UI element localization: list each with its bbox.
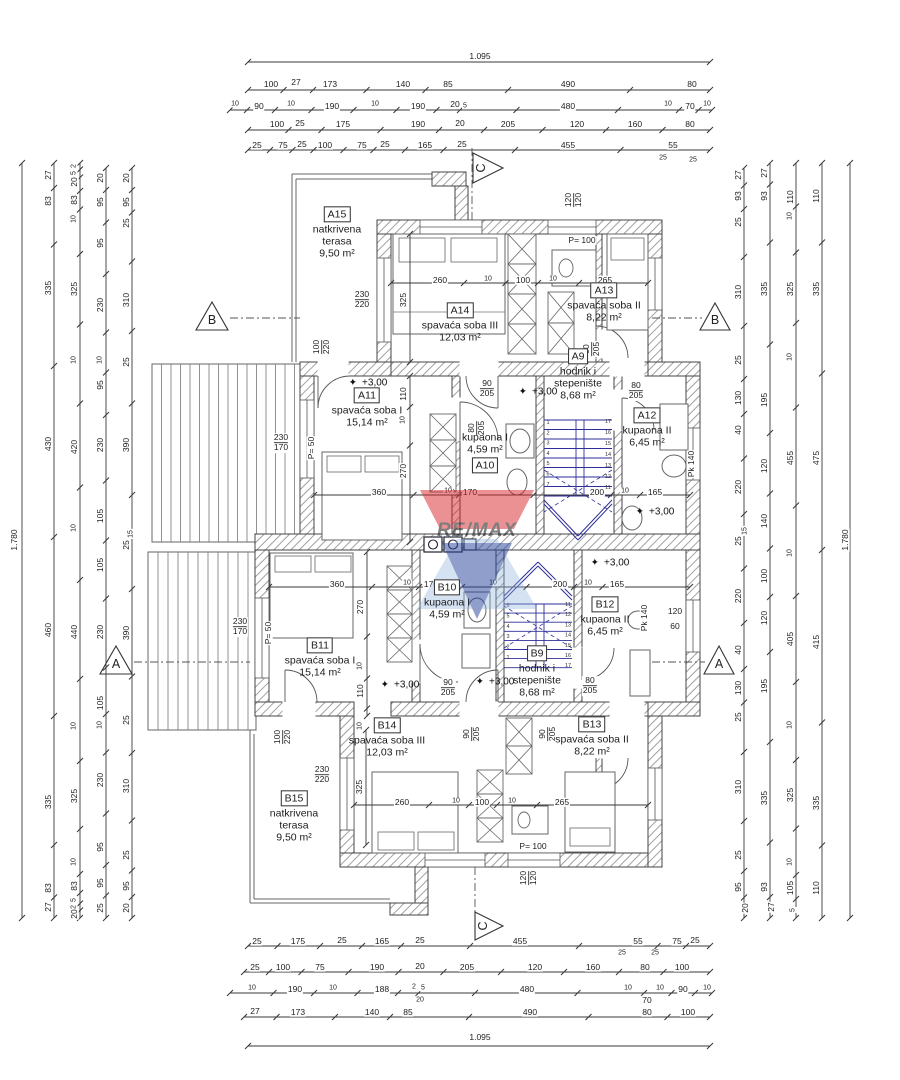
svg-text:3: 3 [546, 441, 549, 447]
dimension-label: 110 [786, 189, 795, 205]
dimension-label: 335 [44, 280, 53, 296]
svg-text:11: 11 [605, 485, 611, 491]
level-star-icon: ✦ [381, 680, 389, 691]
dimension-label: 360 [371, 488, 387, 497]
dimension-label: 83 [44, 195, 53, 206]
dimension-label: 10 [357, 661, 364, 671]
dimension-label: 455 [560, 141, 576, 150]
dimension-label: 25 [122, 356, 131, 367]
dimension-label: 10 [787, 548, 794, 558]
svg-text:5: 5 [546, 461, 549, 467]
dimension-label: 27 [767, 901, 776, 912]
dimension-label: 188 [374, 985, 390, 994]
dimension-label: 5 [420, 985, 426, 992]
opening-size-label: 230170 [232, 617, 248, 637]
dimension-label: 95 [96, 877, 105, 888]
room-label-b12: B12kupaona II6,45 m² [580, 594, 629, 637]
level-marker: ✦+3,00 [381, 680, 420, 691]
dimension-label: 175 [290, 937, 306, 946]
dimension-label: 25 [251, 141, 262, 150]
dimension-label: 325 [786, 787, 795, 803]
dimension-label: 95 [122, 880, 131, 891]
dimension-label: 100 [275, 963, 291, 972]
dimension-label: 230 [96, 772, 105, 788]
dimension-label: 230 [96, 297, 105, 313]
dimension-label: 27 [44, 901, 53, 912]
svg-text:11: 11 [565, 602, 571, 608]
dimension-label: 190 [324, 102, 340, 111]
dimension-label: 130 [734, 390, 743, 406]
dimension-label: 10 [247, 985, 257, 992]
opening-size-label: 120120 [564, 192, 584, 208]
dimension-label: 10 [483, 276, 493, 283]
dimension-label: 25 [734, 849, 743, 860]
svg-text:17: 17 [605, 419, 611, 425]
dimension-label: 10 [71, 355, 78, 365]
dimension-label: 430 [44, 436, 53, 452]
svg-text:2: 2 [546, 430, 549, 436]
dimension-label: 105 [786, 880, 795, 896]
dimension-label: 10 [655, 985, 665, 992]
dimension-label: 325 [786, 281, 795, 297]
opening-size-label: 90205 [479, 379, 495, 399]
dimension-label: 325 [70, 281, 79, 297]
dimension-label: 25 [734, 535, 743, 546]
opening-size-label: 80205 [628, 381, 644, 401]
dimension-label: 80 [686, 80, 697, 89]
watermark-brand-text: RE/MAX [402, 520, 552, 542]
dimension-label: 20 [70, 908, 79, 919]
dimension-label: 480 [560, 102, 576, 111]
dimension-label: 75 [277, 141, 288, 150]
floor-plan-canvas: 1234567171615141312116543211112131415161… [0, 0, 900, 1080]
dimension-label: 325 [70, 788, 79, 804]
dimension-label: 10 [71, 857, 78, 867]
dimension-label: 165 [374, 937, 390, 946]
dimension-label: 10 [71, 721, 78, 731]
dimension-label: 165 [417, 141, 433, 150]
dimension-label: Pk 140 [687, 450, 696, 478]
dimension-label: 205 [500, 120, 516, 129]
opening-size-label: 80205 [582, 676, 598, 696]
dimension-label: 390 [122, 625, 131, 641]
dimension-label: 70 [641, 996, 652, 1005]
dimension-label: 110 [812, 880, 821, 896]
dimension-label: 10 [370, 101, 380, 108]
dimension-label: 90 [253, 102, 264, 111]
dimension-label: 310 [734, 284, 743, 300]
room-label-a15: A15natkrivenaterasa9,50 m² [313, 204, 361, 259]
dimension-label: 173 [290, 1008, 306, 1017]
dimension-label: 20 [122, 902, 131, 913]
dimension-label: 195 [760, 392, 769, 408]
dimension-label: 100 [269, 120, 285, 129]
dimension-label: 335 [44, 794, 53, 810]
dimension-label: 310 [122, 778, 131, 794]
dimension-label: 93 [760, 881, 769, 892]
dimension-label: 120 [667, 607, 683, 616]
dimension-label: 20 [122, 172, 131, 183]
dimension-label: 230 [96, 624, 105, 640]
opening-size-label: 90205 [440, 678, 456, 698]
level-marker: ✦+3,00 [636, 507, 675, 518]
dimension-label: 270 [356, 599, 365, 615]
dimension-label: 27 [760, 167, 769, 178]
opening-size-label: 230220 [314, 765, 330, 785]
dimension-label: 25 [414, 936, 425, 945]
dimension-label: 175 [335, 120, 351, 129]
section-marker-letter: A [111, 658, 121, 671]
dimension-label: 83 [70, 194, 79, 205]
section-marker-letter: A [714, 658, 724, 671]
dimension-label: 10 [71, 214, 78, 224]
dimension-label: 27 [290, 78, 301, 87]
dimension-label: 10 [787, 211, 794, 221]
dimension-label: 27 [249, 1007, 260, 1016]
dimension-label: 190 [410, 102, 426, 111]
level-marker: ✦+3,00 [476, 677, 515, 688]
dimension-label: 190 [410, 120, 426, 129]
room-label-a13: A13spavaća soba II8,22 m² [567, 280, 641, 323]
dimension-label: 55 [632, 937, 643, 946]
dimension-label: Pk 140 [640, 604, 649, 632]
svg-text:15: 15 [565, 643, 571, 649]
dimension-label: 83 [44, 882, 53, 893]
dimension-label: 75 [671, 937, 682, 946]
dimension-label: 10 [787, 352, 794, 362]
dimension-label: 120 [760, 458, 769, 474]
dimension-label: 10 [286, 101, 296, 108]
dimension-label: 265 [554, 798, 570, 807]
dimension-label: 165 [647, 488, 663, 497]
dimension-label: 490 [522, 1008, 538, 1017]
dimension-label: 70 [684, 102, 695, 111]
room-label-b10: B10kupaona I4,59 m² [424, 577, 470, 620]
room-label-a11: A11spavaća soba I15,14 m² [332, 385, 403, 428]
dimension-label: 190 [369, 963, 385, 972]
level-marker: ✦+3,00 [591, 558, 630, 569]
dimension-label: 25 [296, 140, 307, 149]
dimension-label: 25 [650, 950, 660, 957]
dimension-label: 140 [364, 1008, 380, 1017]
dimension-label: 10 [702, 101, 712, 108]
dimension-label: 325 [355, 779, 364, 795]
dimension-label: 90 [677, 985, 688, 994]
svg-text:1: 1 [506, 655, 509, 661]
dimension-label: 415 [812, 634, 821, 650]
svg-text:2: 2 [506, 645, 509, 651]
opening-size-label: 230170 [273, 433, 289, 453]
dimension-label: 20 [414, 962, 425, 971]
dimension-label: 10 [548, 276, 558, 283]
dimension-label: 25 [251, 937, 262, 946]
svg-text:16: 16 [565, 653, 571, 659]
svg-text:15: 15 [605, 441, 611, 447]
dimension-label: 160 [585, 963, 601, 972]
dimension-label: 15 [742, 526, 749, 536]
dimension-label: 25 [658, 155, 668, 162]
section-marker-letter: C [475, 162, 488, 173]
dimension-label: 55 [667, 141, 678, 150]
dimension-label: 85 [402, 1008, 413, 1017]
dimension-label: 95 [96, 841, 105, 852]
dimension-label: 100 [263, 80, 279, 89]
dimension-label: 25 [122, 714, 131, 725]
dimension-label: 455 [512, 937, 528, 946]
dimension-label: 310 [734, 779, 743, 795]
dimension-label: 93 [734, 190, 743, 201]
dimension-label: P= 50 [264, 621, 273, 645]
section-marker-letter: B [207, 314, 217, 327]
opening-size-label: 230220 [354, 290, 370, 310]
dimension-label: 40 [734, 644, 743, 655]
svg-text:13: 13 [565, 622, 571, 628]
level-star-icon: ✦ [636, 507, 644, 518]
dimension-label: 100 [474, 798, 490, 807]
dimension-label: 80 [684, 120, 695, 129]
dimension-label: 480 [519, 985, 535, 994]
dimension-label: P= 50 [307, 436, 316, 460]
dimension-label: 25 [456, 140, 467, 149]
svg-text:3: 3 [506, 634, 509, 640]
dimension-label: 10 [787, 857, 794, 867]
room-label-a12: A12kupaona II6,45 m² [622, 405, 671, 448]
dimension-label: 195 [760, 678, 769, 694]
dimension-label: 25 [122, 217, 131, 228]
dimension-label: 60 [669, 622, 680, 631]
dimension-label: 105 [96, 557, 105, 573]
dimension-label: 25 [379, 140, 390, 149]
dimension-label: 95 [96, 237, 105, 248]
dimension-label: P= 100 [567, 236, 596, 245]
dimension-label: 25 [294, 119, 305, 128]
dimension-label: 10 [97, 355, 104, 365]
dimension-label: 10 [702, 985, 712, 992]
dimension-label: 110 [812, 188, 821, 204]
dimension-label: 10 [97, 720, 104, 730]
dimension-label: 335 [812, 281, 821, 297]
dimension-label: 80 [641, 1008, 652, 1017]
dimension-label: 25 [122, 539, 131, 550]
dimension-label: 1.095 [468, 52, 491, 61]
dimension-label: 100 [760, 568, 769, 584]
dimension-label: 120 [760, 610, 769, 626]
dimension-label: 95 [122, 196, 131, 207]
dimension-label: 100 [515, 276, 531, 285]
dimension-label: 20 [741, 902, 750, 913]
room-label-b15: B15natkrivenaterasa9,50 m² [270, 788, 318, 843]
dimension-label: 20 [70, 176, 79, 187]
room-label-a14: A14spavaća soba III12,03 m² [422, 300, 498, 343]
dimension-label: 440 [70, 624, 79, 640]
dimension-label: 27 [734, 169, 743, 180]
dimension-label: 460 [44, 622, 53, 638]
dimension-label: 20 [96, 172, 105, 183]
dimension-label: P= 100 [518, 842, 547, 851]
dimension-label: 25 [734, 711, 743, 722]
dimension-label: 2 [411, 984, 417, 991]
dimension-label: 1.780 [10, 528, 19, 551]
dimension-label: 110 [356, 683, 365, 699]
dimension-label: 120 [569, 120, 585, 129]
dimension-label: 25 [249, 963, 260, 972]
dimension-label: 20 [449, 100, 460, 109]
dimension-label: 10 [507, 798, 517, 805]
svg-text:12: 12 [605, 474, 611, 480]
dimension-label: 95 [96, 379, 105, 390]
dimension-label: 10 [583, 580, 593, 587]
dimension-label: 75 [356, 141, 367, 150]
svg-text:12: 12 [565, 612, 571, 618]
dimension-label: 335 [812, 795, 821, 811]
dimension-label: 40 [734, 424, 743, 435]
room-label-b13: B13spavaća soba II8,22 m² [555, 714, 629, 757]
svg-text:17: 17 [565, 663, 571, 669]
dimension-label: 1.780 [841, 528, 850, 551]
section-marker-letter: C [477, 920, 490, 931]
dimension-label: 10 [230, 101, 240, 108]
dimension-label: 325 [399, 292, 408, 308]
dimension-label: 15 [128, 529, 135, 539]
dimension-label: 20 [415, 997, 425, 1004]
dimension-label: 105 [96, 695, 105, 711]
dimension-label: 490 [560, 80, 576, 89]
dimension-label: 190 [287, 985, 303, 994]
level-marker: ✦+3,00 [519, 387, 558, 398]
dimension-label: 25 [688, 157, 698, 164]
dimension-label: 130 [734, 680, 743, 696]
dimension-label: 335 [760, 790, 769, 806]
dimension-label: 5 [790, 907, 797, 913]
dimension-label: 165 [609, 580, 625, 589]
dimension-label: 335 [760, 281, 769, 297]
level-star-icon: ✦ [519, 387, 527, 398]
dimension-label: 140 [760, 513, 769, 529]
opening-size-label: 100220 [273, 729, 293, 745]
dimension-label: 93 [760, 190, 769, 201]
svg-text:13: 13 [605, 463, 611, 469]
dimension-label: 83 [70, 880, 79, 891]
dimension-label: 160 [627, 120, 643, 129]
dimension-label: 100 [317, 141, 333, 150]
dimension-label: 25 [336, 936, 347, 945]
dimension-label: 10 [787, 720, 794, 730]
dimension-label: 5 [71, 897, 78, 903]
dimension-label: 25 [96, 902, 105, 913]
room-label-a9: A9hodnik istepenište8,68 m² [554, 346, 602, 401]
opening-size-label: 120120 [519, 870, 539, 886]
dimension-label: 25 [617, 950, 627, 957]
dimension-label: 95 [96, 196, 105, 207]
opening-size-label: 100220 [312, 339, 332, 355]
dimension-label: 25 [689, 936, 700, 945]
dimension-label: 405 [786, 631, 795, 647]
level-star-icon: ✦ [349, 378, 357, 389]
room-label-b11: B11spavaća soba I15,14 m² [285, 635, 356, 678]
dimension-label: 270 [399, 463, 408, 479]
svg-text:16: 16 [605, 430, 611, 436]
dimension-label: 140 [395, 80, 411, 89]
dimension-label: 75 [314, 963, 325, 972]
svg-text:14: 14 [605, 452, 611, 458]
dimension-label: 173 [322, 80, 338, 89]
dimension-label: 2 [71, 163, 78, 169]
dimension-label: 230 [96, 437, 105, 453]
opening-size-label: 90205 [462, 726, 482, 742]
dimension-label: 25 [734, 354, 743, 365]
dimension-label: 10 [620, 488, 630, 495]
dimension-label: 1.095 [468, 1033, 491, 1042]
dimension-label: 10 [71, 523, 78, 533]
dimension-label: 10 [328, 985, 338, 992]
dimension-label: 20 [454, 119, 465, 128]
dimension-label: 25 [122, 849, 131, 860]
dimension-label: 5 [462, 103, 468, 110]
dimension-label: 10 [451, 798, 461, 805]
dimension-label: 105 [96, 508, 105, 524]
dimension-label: 260 [394, 798, 410, 807]
level-marker: ✦+3,00 [349, 378, 388, 389]
svg-text:6: 6 [546, 472, 549, 478]
dimension-label: 100 [680, 1008, 696, 1017]
dimension-label: 5 [71, 170, 78, 176]
dimension-label: 10 [663, 101, 673, 108]
dimension-label: 10 [623, 985, 633, 992]
dimension-label: 260 [432, 276, 448, 285]
dimension-label: 220 [734, 588, 743, 604]
dimension-label: 360 [329, 580, 345, 589]
room-label-b9: B9hodnik istepenište8,68 m² [513, 643, 561, 698]
dimension-label: 390 [122, 437, 131, 453]
dimension-label: 200 [589, 488, 605, 497]
dimension-label: 85 [442, 80, 453, 89]
dimension-label: 455 [786, 450, 795, 466]
dimension-label: 220 [734, 479, 743, 495]
dimension-label: 27 [44, 169, 53, 180]
dimension-label: 120 [527, 963, 543, 972]
svg-text:4: 4 [546, 451, 549, 457]
dimension-label: 200 [552, 580, 568, 589]
level-star-icon: ✦ [476, 677, 484, 688]
svg-text:1: 1 [546, 420, 549, 426]
dimension-label: 100 [674, 963, 690, 972]
level-star-icon: ✦ [591, 558, 599, 569]
dimension-label: 25 [734, 216, 743, 227]
dimension-label: 475 [812, 450, 821, 466]
dimension-label: 310 [122, 292, 131, 308]
dimension-label: 420 [70, 439, 79, 455]
dimension-label: 95 [734, 881, 743, 892]
dimension-label: 80 [639, 963, 650, 972]
svg-text:14: 14 [565, 633, 571, 639]
room-label-a10: kupaona I4,59 m²A10 [462, 431, 508, 474]
room-label-b14: B14spavaća soba III12,03 m² [349, 715, 425, 758]
section-marker-letter: B [710, 314, 720, 327]
dimension-label: 205 [459, 963, 475, 972]
